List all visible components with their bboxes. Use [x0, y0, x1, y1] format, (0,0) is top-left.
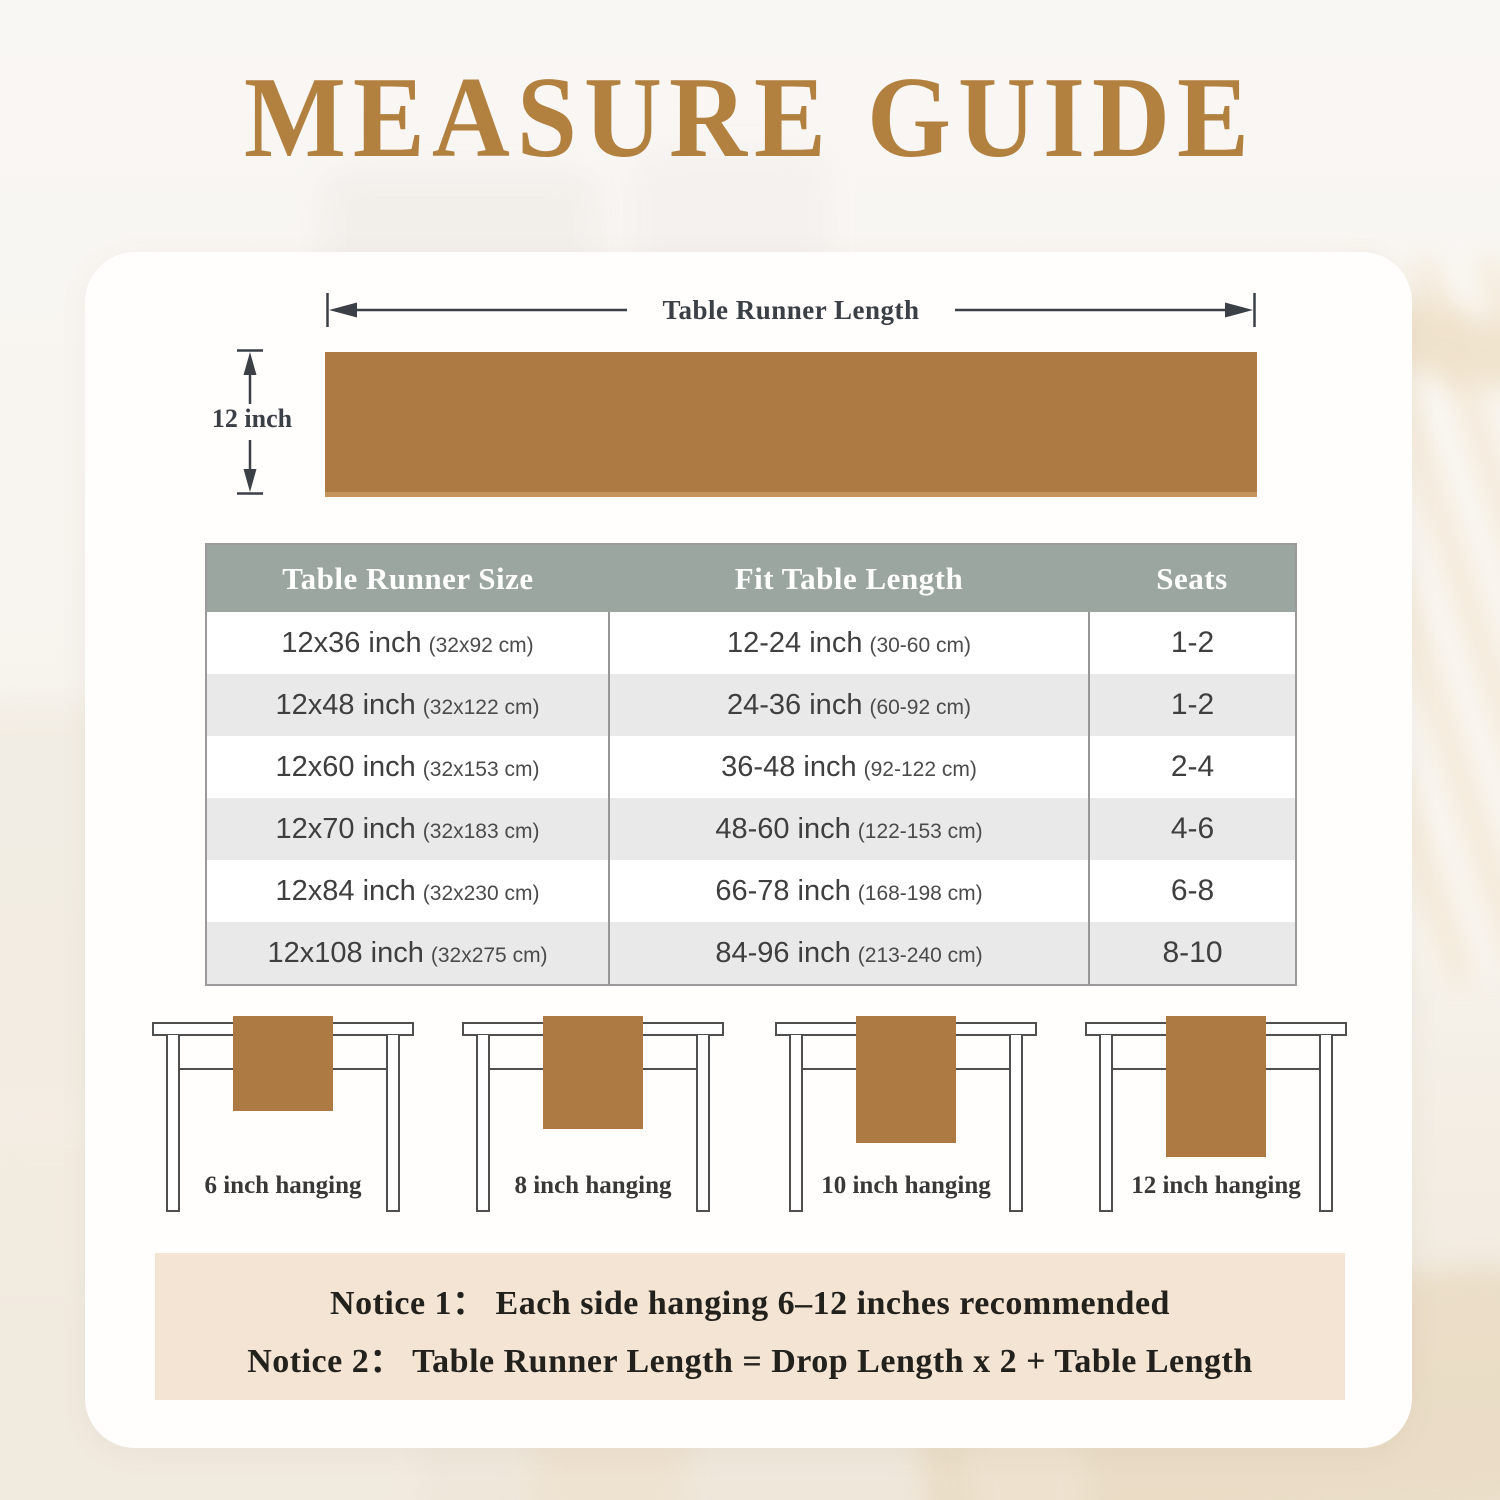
size-table: Table Runner Size Fit Table Length Seats…: [205, 543, 1297, 986]
notice-box: Notice 1： Each side hanging 6–12 inches …: [155, 1253, 1345, 1400]
runner-size-value: 12x48 inch: [276, 689, 416, 721]
hanging-label: 6 inch hanging: [148, 1172, 418, 1200]
runner-drape: [1166, 1016, 1266, 1157]
runner-length-label: Table Runner Length: [325, 295, 1257, 326]
table-row: 12x70 inch(32x183 cm) 48-60 inch(122-153…: [206, 798, 1296, 860]
fit-length-value: 66-78 inch: [715, 875, 850, 907]
fit-length-value: 48-60 inch: [715, 813, 850, 845]
measure-guide-infographic: MEASURE GUIDE Table Runner Length: [0, 0, 1500, 1500]
fit-length-cm: (122-153 cm): [858, 820, 983, 843]
column-header-fit-length: Fit Table Length: [609, 544, 1089, 612]
seats-value: 8-10: [1089, 922, 1296, 985]
runner-size-cm: (32x92 cm): [429, 634, 534, 657]
page-title: MEASURE GUIDE: [0, 52, 1500, 185]
guide-card: Table Runner Length 12 inch Table Runner…: [85, 252, 1412, 1448]
hanging-label: 10 inch hanging: [771, 1172, 1041, 1200]
runner-drape: [543, 1016, 643, 1129]
runner-drape: [856, 1016, 956, 1143]
table-row: 12x108 inch(32x275 cm) 84-96 inch(213-24…: [206, 922, 1296, 985]
hanging-label: 12 inch hanging: [1081, 1172, 1351, 1200]
table-illustration-8in: 8 inch hanging: [458, 1022, 728, 1218]
table-row: 12x36 inch(32x92 cm) 12-24 inch(30-60 cm…: [206, 612, 1296, 674]
seats-value: 2-4: [1089, 736, 1296, 798]
fit-length-cm: (168-198 cm): [858, 882, 983, 905]
fit-length-cm: (30-60 cm): [869, 634, 971, 657]
hanging-label: 8 inch hanging: [458, 1172, 728, 1200]
notice-line-1: Notice 1： Each side hanging 6–12 inches …: [155, 1275, 1345, 1333]
fit-length-cm: (92-122 cm): [864, 758, 977, 781]
fit-length-value: 24-36 inch: [727, 689, 862, 721]
fit-length-value: 36-48 inch: [721, 751, 856, 783]
size-table-header: Table Runner Size Fit Table Length Seats: [206, 544, 1296, 612]
fit-length-value: 12-24 inch: [727, 627, 862, 659]
runner-size-value: 12x60 inch: [276, 751, 416, 783]
seats-value: 4-6: [1089, 798, 1296, 860]
fit-length-cm: (60-92 cm): [869, 696, 971, 719]
notice-line-2: Notice 2： Table Runner Length = Drop Len…: [155, 1333, 1345, 1391]
runner-size-value: 12x70 inch: [276, 813, 416, 845]
seats-value: 1-2: [1089, 674, 1296, 736]
table-illustration-6in: 6 inch hanging: [148, 1022, 418, 1218]
runner-size-cm: (32x275 cm): [431, 944, 548, 967]
column-header-runner-size: Table Runner Size: [206, 544, 609, 612]
table-illustration-10in: 10 inch hanging: [771, 1022, 1041, 1218]
column-header-seats: Seats: [1089, 544, 1296, 612]
runner-length-arrow: Table Runner Length: [325, 292, 1257, 328]
runner-size-cm: (32x153 cm): [423, 758, 540, 781]
runner-size-cm: (32x230 cm): [423, 882, 540, 905]
seats-value: 1-2: [1089, 612, 1296, 674]
fit-length-cm: (213-240 cm): [858, 944, 983, 967]
runner-size-value: 12x36 inch: [281, 627, 421, 659]
runner-size-cm: (32x122 cm): [423, 696, 540, 719]
table-runner-swatch: [325, 352, 1257, 497]
runner-size-cm: (32x183 cm): [423, 820, 540, 843]
table-illustration-12in: 12 inch hanging: [1081, 1022, 1351, 1218]
runner-size-value: 12x84 inch: [276, 875, 416, 907]
table-row: 12x48 inch(32x122 cm) 24-36 inch(60-92 c…: [206, 674, 1296, 736]
runner-drape: [233, 1016, 333, 1111]
seats-value: 6-8: [1089, 860, 1296, 922]
runner-size-value: 12x108 inch: [267, 937, 423, 969]
table-row: 12x84 inch(32x230 cm) 66-78 inch(168-198…: [206, 860, 1296, 922]
table-row: 12x60 inch(32x153 cm) 36-48 inch(92-122 …: [206, 736, 1296, 798]
fit-length-value: 84-96 inch: [715, 937, 850, 969]
runner-width-label: 12 inch: [208, 404, 296, 434]
